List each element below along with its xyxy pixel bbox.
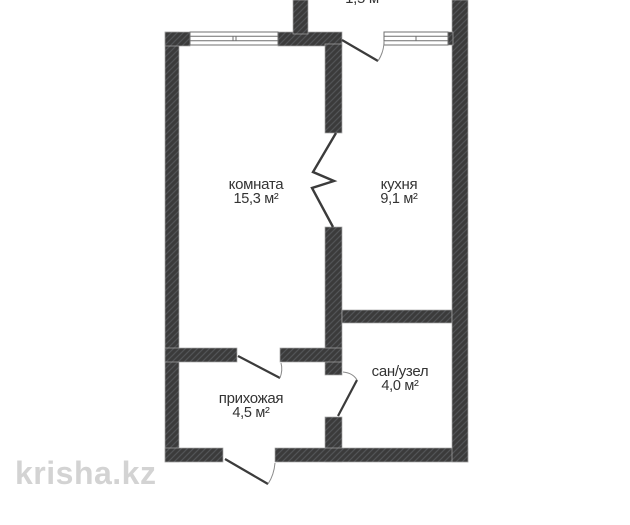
room-area: 4,0 м²: [340, 379, 460, 394]
room-window-icon: [190, 32, 278, 45]
room-label-prihozhaya: прихожая 4,5 м²: [191, 391, 311, 421]
floor-plan-svg: [0, 0, 630, 525]
watermark-logo: krisha.kz: [15, 455, 156, 492]
kitchen-window-icon: [384, 32, 448, 45]
room-label-kuhnya: кухня 9,1 м²: [339, 177, 459, 207]
wall-hall-top-left-segment: [165, 348, 237, 362]
wall-window-stub: [448, 32, 453, 45]
room-name: сан/узел: [340, 364, 460, 379]
room-name: комната: [196, 177, 316, 192]
balcony-area: 1,5 м: [345, 0, 379, 7]
wall-partition-upper: [325, 44, 342, 133]
room-area: 4,5 м²: [191, 406, 311, 421]
balcony-door-icon: [342, 40, 384, 61]
room-label-komnata: комната 15,3 м²: [196, 177, 316, 207]
room-door-icon: [238, 356, 282, 378]
wall-bottom-right-segment: [275, 448, 468, 462]
room-area: 9,1 м²: [339, 192, 459, 207]
entrance-door-icon: [225, 459, 275, 484]
wall-kitchen-bathroom-divider: [342, 310, 452, 323]
floor-plan: 1,5 м комната 15,3 м² кухня 9,1 м² прихо…: [0, 0, 630, 525]
wall-hall-top-right-segment: [280, 348, 342, 362]
wall-bottom-left-segment: [165, 448, 223, 462]
wall-left-outer: [165, 32, 179, 462]
balcony-label: 1,5 м: [304, 0, 420, 6]
wall-top-left-segment: [165, 32, 190, 46]
room-label-sanuzel: сан/узел 4,0 м²: [340, 364, 460, 394]
room-name: кухня: [339, 177, 459, 192]
room-area: 15,3 м²: [196, 192, 316, 207]
room-name: прихожая: [191, 391, 311, 406]
